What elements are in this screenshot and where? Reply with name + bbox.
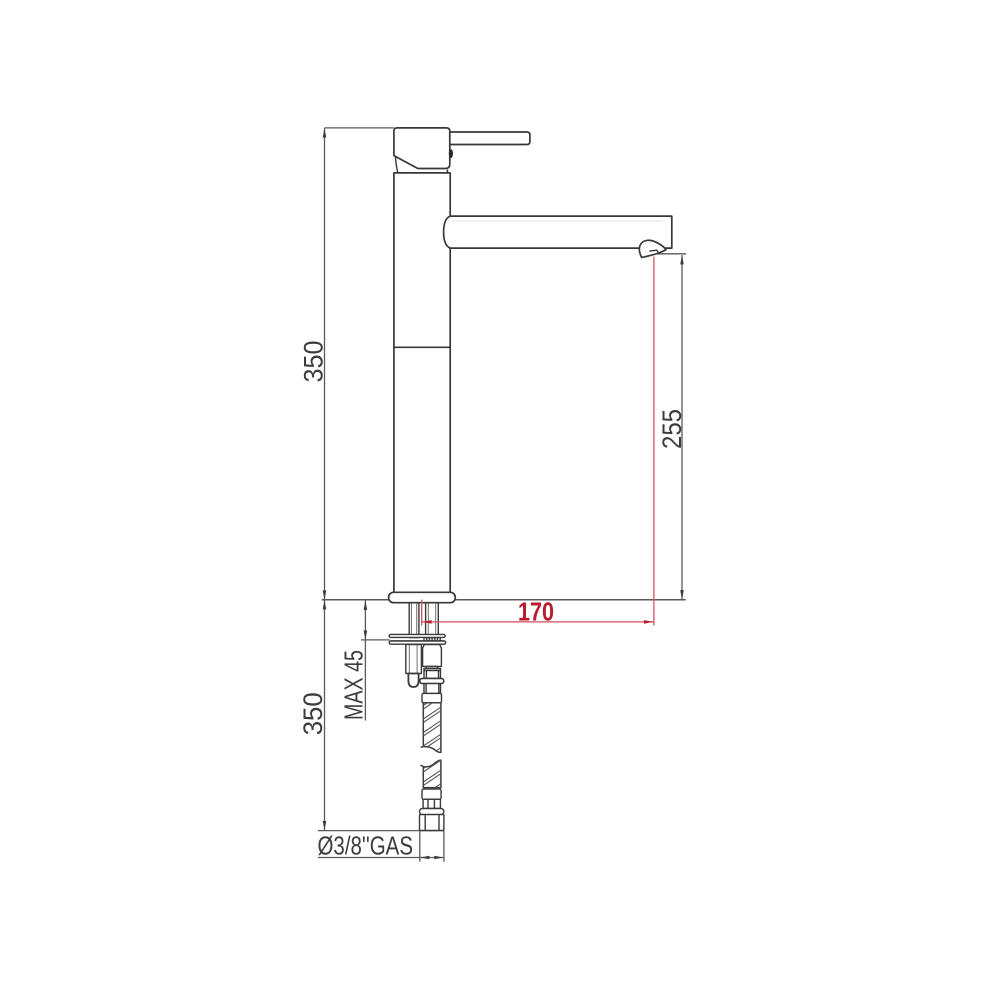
svg-text:350: 350 xyxy=(299,341,329,383)
svg-text:170: 170 xyxy=(518,599,554,627)
svg-text:350: 350 xyxy=(298,692,328,735)
svg-text:Ø3/8''GAS: Ø3/8''GAS xyxy=(318,832,414,860)
svg-text:MAX 45: MAX 45 xyxy=(341,650,369,720)
svg-text:255: 255 xyxy=(657,409,687,449)
